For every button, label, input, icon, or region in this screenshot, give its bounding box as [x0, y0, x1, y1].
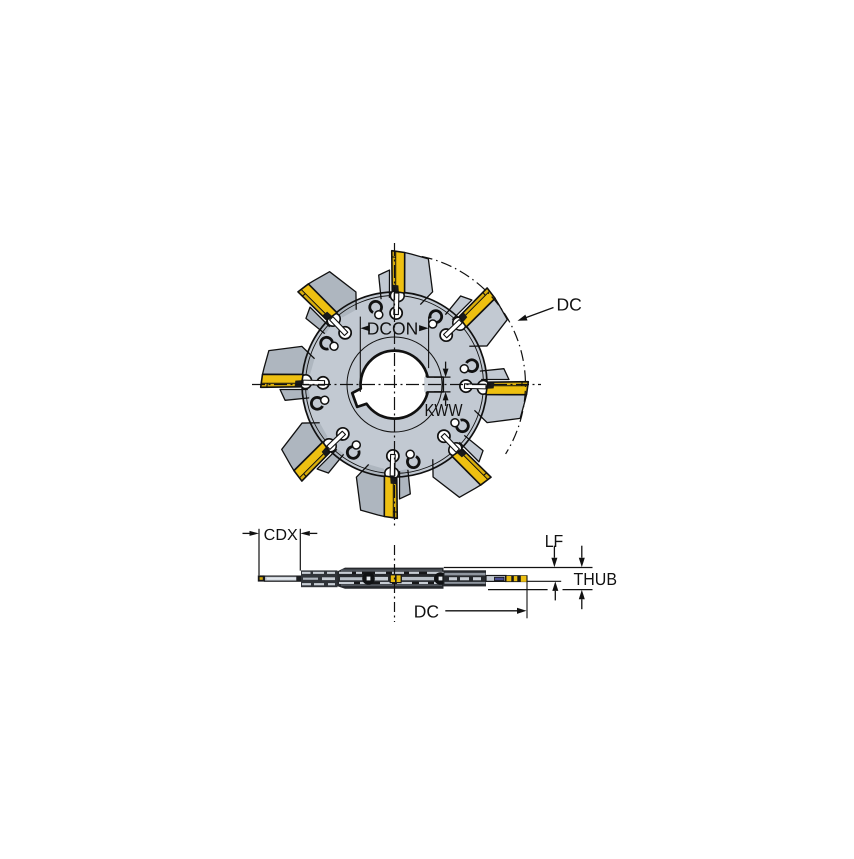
- svg-text:CDX: CDX: [264, 527, 298, 544]
- svg-text:DC: DC: [414, 601, 439, 621]
- svg-text:DC: DC: [557, 295, 582, 315]
- svg-text:THUB: THUB: [574, 569, 618, 589]
- svg-text:DCON: DCON: [367, 319, 419, 339]
- svg-text:KWW: KWW: [425, 400, 463, 420]
